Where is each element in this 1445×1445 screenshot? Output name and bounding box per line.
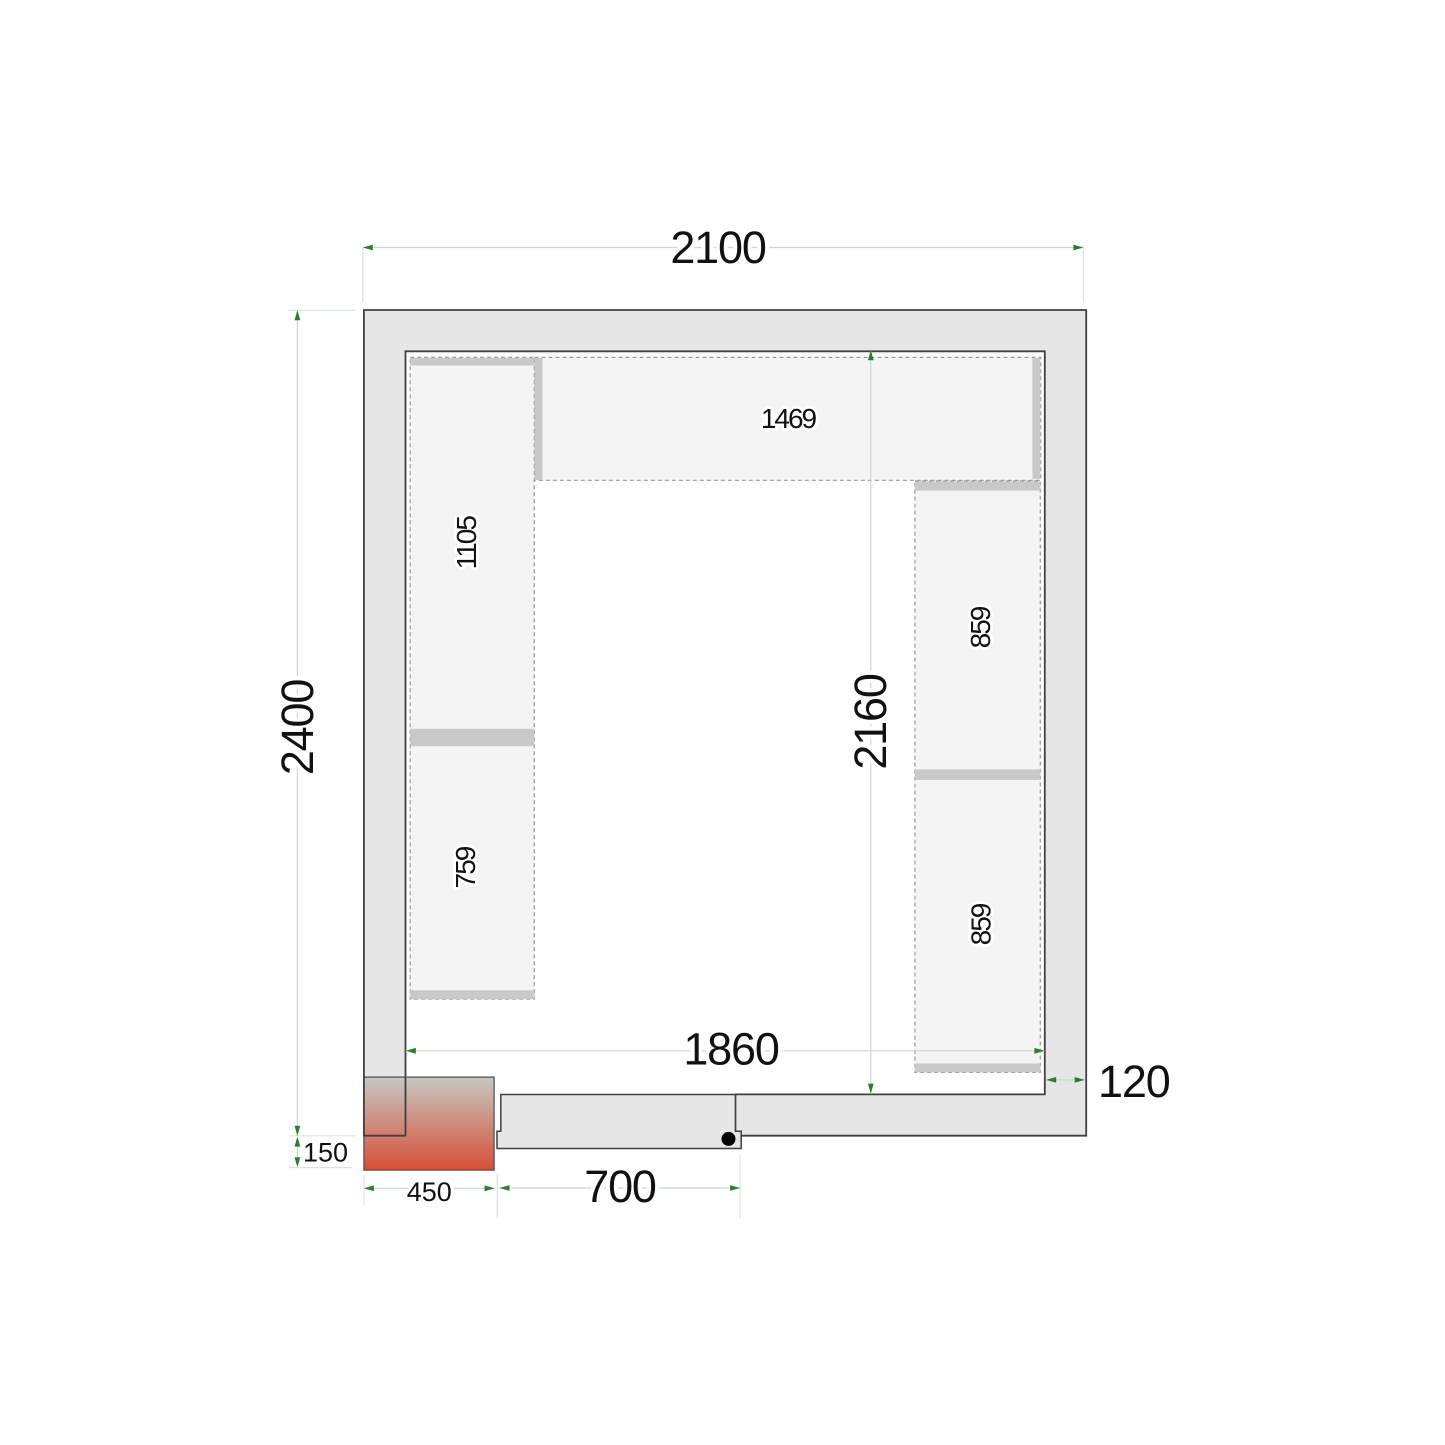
svg-text:150: 150 [303,1138,348,1168]
svg-text:120: 120 [1098,1056,1170,1107]
svg-text:2400: 2400 [272,680,323,775]
svg-text:1469: 1469 [761,403,817,434]
svg-text:859: 859 [966,903,997,945]
svg-text:2100: 2100 [670,222,765,273]
svg-text:450: 450 [407,1177,452,1207]
svg-text:759: 759 [450,846,481,888]
svg-text:2160: 2160 [845,674,896,769]
svg-text:700: 700 [584,1161,656,1212]
svg-text:1860: 1860 [683,1024,778,1075]
svg-text:1105: 1105 [451,516,482,570]
svg-text:859: 859 [965,606,996,648]
